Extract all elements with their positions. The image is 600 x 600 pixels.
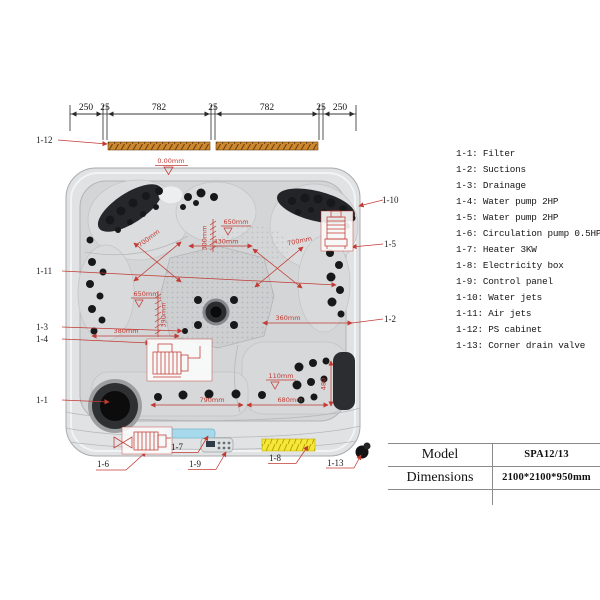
spec-row-model: Model SPA12/13	[388, 443, 600, 466]
legend-item-electricity: 1-8: Electricity box	[456, 258, 600, 274]
callout-electricity-box: 1-8	[269, 453, 281, 463]
dim-782-a: 782	[152, 103, 167, 113]
spec-table-tail	[388, 490, 600, 505]
dim-lounger-width: 680mm	[277, 396, 302, 404]
legend-item-control-panel: 1-9: Control panel	[456, 274, 600, 290]
leader-1-12	[58, 140, 107, 144]
dim-lounger-height: 480	[320, 378, 328, 390]
dim-bench-width: 790mm	[199, 396, 224, 404]
dim-lounger-top-width: 360mm	[275, 314, 300, 322]
pump-schematic-1-5	[321, 211, 353, 251]
callout-water-jets: 1-10	[382, 195, 399, 205]
leader-1-13	[354, 455, 361, 468]
legend-item-ps-cabinet: 1-12: PS cabinet	[456, 322, 600, 338]
dim-center-depth: 650mm	[223, 218, 248, 226]
callout-corner-drain-valve: 1-13	[327, 458, 344, 468]
electricity-box	[262, 439, 315, 451]
callout-control-panel: 1-9	[189, 459, 201, 469]
legend-item-water-jets: 1-10: Water jets	[456, 290, 600, 306]
ps-cabinet-bars	[108, 142, 318, 150]
callout-water-pump-5: 1-5	[384, 239, 396, 249]
spec-row-dimensions: Dimensions 2100*2100*950mm	[388, 466, 600, 490]
corner-drain-valve	[356, 443, 371, 459]
filter-housing	[88, 379, 142, 433]
dim-25-a: 25	[100, 103, 110, 113]
legend-item-air-jets: 1-11: Air jets	[456, 306, 600, 322]
dim-left-depth: 650mm	[133, 290, 158, 298]
lounger-pillow	[333, 352, 355, 410]
callout-air-jets: 1-11	[36, 266, 52, 276]
callout-circulation-pump: 1-6	[97, 459, 109, 469]
legend-item-heater: 1-7: Heater 3KW	[456, 242, 600, 258]
legend-item-corner-drain: 1-13: Corner drain valve	[456, 338, 600, 354]
legend-item-water-pump-4: 1-4: Water pump 2HP	[456, 194, 600, 210]
spec-table: Model SPA12/13 Dimensions 2100*2100*950m…	[388, 443, 600, 505]
legend-item-drainage: 1-3: Drainage	[456, 178, 600, 194]
dim-250-left: 250	[79, 103, 94, 113]
dim-25-b: 25	[208, 103, 218, 113]
dim-782-b: 782	[260, 103, 275, 113]
spec-model-value: SPA12/13	[493, 444, 600, 466]
spec-dimensions-label: Dimensions	[388, 467, 493, 489]
legend-item-suctions: 1-2: Suctions	[456, 162, 600, 178]
callout-heater: 1-7	[171, 442, 183, 452]
callout-water-pump-4: 1-4	[36, 334, 48, 344]
callout-ps-cabinet: 1-12	[36, 135, 53, 145]
top-dimension-chain: 250 25 782 25 782 25 250	[70, 103, 356, 150]
drainage-fitting	[182, 328, 188, 334]
center-drain	[204, 300, 228, 324]
dim-datum: 0.00mm	[157, 157, 184, 165]
legend-item-filter: 1-1: Filter	[456, 146, 600, 162]
spa-spec-sheet: 250 25 782 25 782 25 250	[0, 0, 600, 600]
callout-filter: 1-1	[36, 395, 48, 405]
dim-lounger-datum: 110mm	[268, 372, 293, 380]
dim-left-width: 380mm	[113, 327, 138, 335]
dim-25-c: 25	[316, 103, 326, 113]
parts-legend: 1-1: Filter 1-2: Suctions 1-3: Drainage …	[456, 146, 600, 354]
pump-schematic-1-6	[114, 427, 172, 454]
legend-item-water-pump-5: 1-5: Water pump 2HP	[456, 210, 600, 226]
round-pillow	[159, 186, 183, 204]
dim-left-back: 390mm	[160, 302, 168, 327]
pump-schematic-1-4	[147, 339, 212, 381]
callout-suctions: 1-2	[384, 314, 396, 324]
callout-drainage: 1-3	[36, 322, 48, 332]
spec-model-label: Model	[388, 444, 493, 466]
legend-item-circulation: 1-6: Circulation pump 0.5HP	[456, 226, 600, 242]
dim-250-right: 250	[333, 103, 348, 113]
leader-1-10	[359, 200, 383, 206]
dim-center-back: 300mm	[201, 225, 209, 250]
spec-dimensions-value: 2100*2100*950mm	[493, 467, 600, 489]
dim-center-width: 430mm	[213, 238, 238, 246]
